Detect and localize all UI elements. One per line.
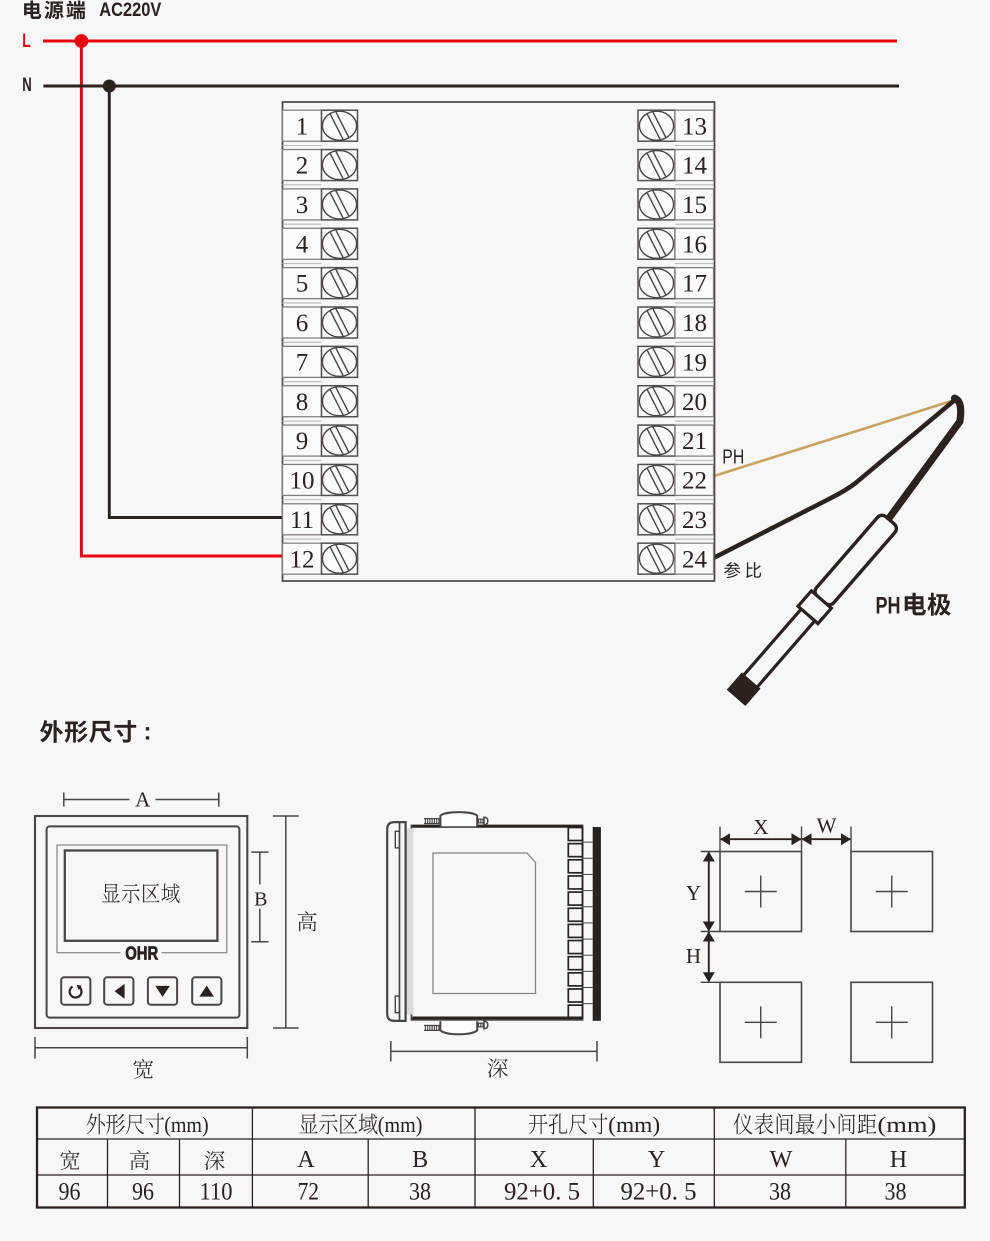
svg-text:B: B [254,889,267,911]
svg-text:(mm): (mm) [164,1112,209,1137]
svg-text:H: H [686,944,701,968]
svg-text:11: 11 [290,507,314,534]
svg-text:18: 18 [682,310,707,337]
svg-text:B: B [412,1147,428,1173]
svg-text:(mm): (mm) [378,1112,423,1137]
svg-text:3: 3 [296,192,309,219]
svg-text:15: 15 [682,192,707,219]
svg-text:7: 7 [296,349,309,376]
svg-text:(mm): (mm) [608,1112,660,1137]
svg-text:14: 14 [682,153,708,180]
svg-text:OHR: OHR [125,944,158,964]
svg-text:92+0. 5: 92+0. 5 [621,1177,697,1206]
svg-text:Y: Y [648,1147,665,1173]
svg-text:1: 1 [296,113,309,140]
svg-text:2: 2 [296,153,309,180]
svg-text:A: A [135,788,151,812]
svg-text:13: 13 [682,113,707,140]
svg-text:38: 38 [769,1177,791,1206]
svg-text:5: 5 [296,271,309,298]
svg-text:72: 72 [297,1177,319,1206]
svg-text:21: 21 [682,428,707,455]
svg-text:W: W [770,1147,793,1173]
svg-text:9: 9 [296,428,309,455]
svg-text:96: 96 [132,1177,154,1206]
svg-text:23: 23 [682,507,707,534]
svg-text:Y: Y [686,881,701,905]
svg-text:38: 38 [885,1177,907,1206]
svg-text:4: 4 [296,231,309,258]
svg-text:A: A [297,1147,315,1173]
svg-text:96: 96 [59,1177,81,1206]
svg-text:110: 110 [200,1177,233,1206]
svg-text:L: L [22,31,31,52]
svg-text:W: W [817,813,837,837]
svg-text:17: 17 [682,271,707,298]
svg-text:6: 6 [296,310,309,337]
svg-text:24: 24 [682,546,708,573]
svg-text:92+0. 5: 92+0. 5 [504,1177,580,1206]
svg-text:22: 22 [682,468,707,495]
svg-text:N: N [22,75,32,96]
svg-text:PH: PH [722,446,744,468]
svg-text:12: 12 [290,546,315,573]
svg-text:10: 10 [290,468,315,495]
svg-text:19: 19 [682,349,707,376]
svg-text:PH: PH [876,593,901,620]
svg-text:38: 38 [409,1177,431,1206]
svg-text:16: 16 [682,231,707,258]
svg-text:20: 20 [682,389,707,416]
svg-text:8: 8 [296,389,309,416]
svg-text:H: H [890,1147,907,1173]
svg-text:AC220V: AC220V [99,0,161,21]
svg-text:X: X [530,1147,547,1173]
svg-text:X: X [753,815,768,839]
svg-text:(mm): (mm) [877,1112,936,1137]
svg-text::: : [144,719,152,746]
